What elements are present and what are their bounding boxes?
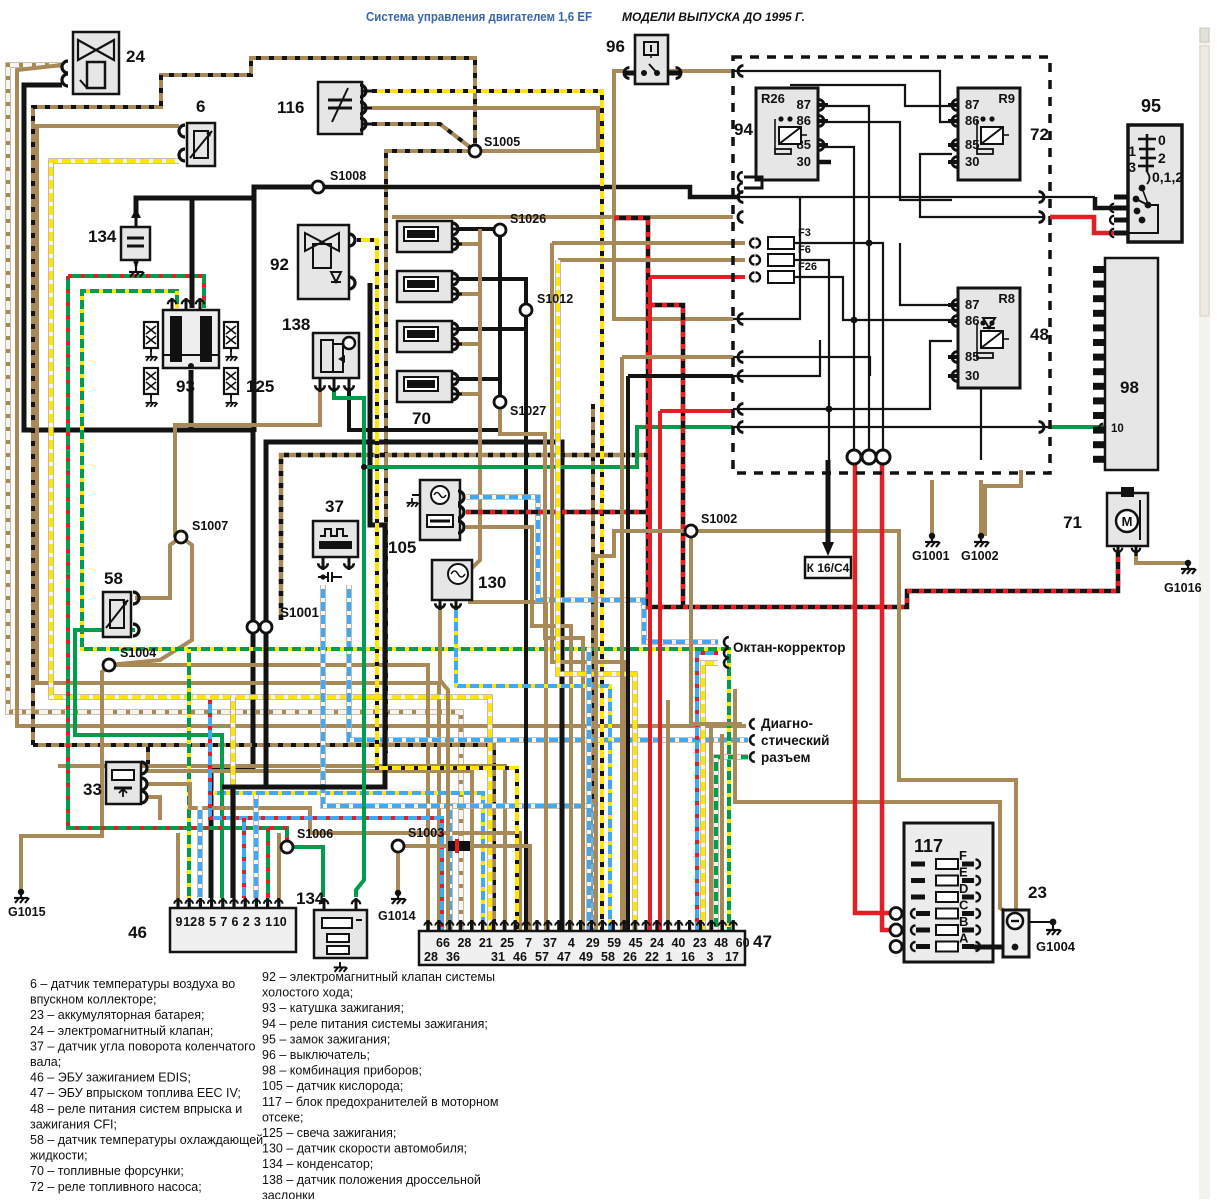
svg-text:24: 24 bbox=[650, 936, 664, 950]
svg-text:87: 87 bbox=[965, 297, 979, 312]
svg-text:C: C bbox=[959, 898, 969, 913]
svg-text:95: 95 bbox=[1141, 96, 1161, 116]
svg-text:71: 71 bbox=[1063, 513, 1082, 532]
svg-text:R26: R26 bbox=[761, 91, 785, 106]
svg-text:M: M bbox=[1122, 514, 1133, 529]
svg-text:58: 58 bbox=[601, 950, 615, 964]
svg-text:23 – аккумуляторная батарея;: 23 – аккумуляторная батарея; bbox=[30, 1008, 205, 1022]
svg-text:93 – катушка зажигания;: 93 – катушка зажигания; bbox=[262, 1001, 404, 1015]
svg-text:8: 8 bbox=[198, 915, 205, 929]
svg-text:S1001: S1001 bbox=[280, 605, 320, 620]
svg-text:разъем: разъем bbox=[761, 750, 810, 765]
svg-text:96: 96 bbox=[606, 37, 625, 56]
svg-text:6: 6 bbox=[196, 97, 205, 116]
svg-text:28: 28 bbox=[457, 936, 471, 950]
svg-text:23: 23 bbox=[1028, 883, 1047, 902]
svg-text:60: 60 bbox=[736, 936, 750, 950]
svg-text:жидкости;: жидкости; bbox=[30, 1149, 88, 1163]
svg-text:1: 1 bbox=[666, 950, 673, 964]
svg-text:36: 36 bbox=[446, 950, 460, 964]
svg-text:B: B bbox=[959, 914, 968, 929]
svg-text:70: 70 bbox=[412, 409, 431, 428]
svg-text:72: 72 bbox=[1030, 125, 1049, 144]
svg-text:87: 87 bbox=[797, 97, 811, 112]
svg-text:26: 26 bbox=[623, 950, 637, 964]
svg-text:134 – конденсатор;: 134 – конденсатор; bbox=[262, 1157, 373, 1171]
svg-text:25: 25 bbox=[500, 936, 514, 950]
svg-text:134: 134 bbox=[296, 889, 325, 908]
svg-text:R8: R8 bbox=[998, 291, 1015, 306]
svg-text:7: 7 bbox=[525, 936, 532, 950]
svg-text:49: 49 bbox=[579, 950, 593, 964]
svg-text:5: 5 bbox=[209, 915, 216, 929]
svg-text:24 – электромагнитный клапан;: 24 – электромагнитный клапан; bbox=[30, 1024, 213, 1038]
svg-text:37: 37 bbox=[543, 936, 557, 950]
svg-text:22: 22 bbox=[645, 950, 659, 964]
svg-text:130: 130 bbox=[478, 573, 506, 592]
svg-text:58: 58 bbox=[104, 569, 123, 588]
svg-text:заслонки: заслонки bbox=[262, 1188, 315, 1199]
svg-text:70 – топливные форсунки;: 70 – топливные форсунки; bbox=[30, 1164, 184, 1178]
svg-text:125 – свеча зажигания;: 125 – свеча зажигания; bbox=[262, 1126, 396, 1140]
svg-text:37 – датчик угла поворота коле: 37 – датчик угла поворота коленчатого bbox=[30, 1039, 255, 1053]
svg-text:98 – комбинация приборов;: 98 – комбинация приборов; bbox=[262, 1064, 422, 1078]
svg-text:9: 9 bbox=[176, 915, 183, 929]
svg-text:К 16/С4: К 16/С4 bbox=[807, 561, 850, 575]
svg-text:72 – реле топливного насоса;: 72 – реле топливного насоса; bbox=[30, 1180, 202, 1194]
svg-text:S1003: S1003 bbox=[408, 826, 444, 840]
svg-text:48: 48 bbox=[1030, 325, 1049, 344]
svg-text:отсеке;: отсеке; bbox=[262, 1110, 304, 1124]
svg-text:117 – блок предохранителей в м: 117 – блок предохранителей в моторном bbox=[262, 1095, 498, 1109]
svg-text:138 – датчик положения дроссел: 138 – датчик положения дроссельной bbox=[262, 1173, 481, 1187]
svg-text:4: 4 bbox=[568, 936, 575, 950]
svg-text:G1014: G1014 bbox=[378, 909, 416, 923]
svg-text:86: 86 bbox=[797, 113, 811, 128]
svg-text:37: 37 bbox=[325, 497, 344, 516]
svg-text:59: 59 bbox=[607, 936, 621, 950]
svg-text:1: 1 bbox=[265, 915, 272, 929]
svg-text:93: 93 bbox=[176, 377, 195, 396]
svg-text:12: 12 bbox=[183, 915, 197, 929]
svg-text:46 – ЭБУ зажиганием EDIS;: 46 – ЭБУ зажиганием EDIS; bbox=[30, 1071, 191, 1085]
svg-text:3: 3 bbox=[254, 915, 261, 929]
svg-text:58 – датчик температуры охлажд: 58 – датчик температуры охлаждающей bbox=[30, 1133, 263, 1147]
svg-text:134: 134 bbox=[88, 227, 117, 246]
svg-text:Октан-корректор: Октан-корректор bbox=[733, 640, 846, 655]
svg-text:2: 2 bbox=[1158, 150, 1166, 166]
svg-text:30: 30 bbox=[965, 368, 979, 383]
svg-text:45: 45 bbox=[629, 936, 643, 950]
svg-text:47: 47 bbox=[557, 950, 571, 964]
svg-text:92 – электромагнитный клапан с: 92 – электромагнитный клапан системы bbox=[262, 970, 495, 984]
svg-text:130 – датчик скорости автомоби: 130 – датчик скорости автомобиля; bbox=[262, 1142, 467, 1156]
svg-text:138: 138 bbox=[282, 315, 310, 334]
svg-text:S1005: S1005 bbox=[484, 135, 520, 149]
svg-text:впускном коллекторе;: впускном коллекторе; bbox=[30, 993, 157, 1007]
svg-text:6 – датчик температуры воздуха: 6 – датчик температуры воздуха во bbox=[30, 977, 235, 991]
svg-text:10: 10 bbox=[1111, 423, 1124, 435]
svg-text:МОДЕЛИ ВЫПУСКА ДО 1995 Г.: МОДЕЛИ ВЫПУСКА ДО 1995 Г. bbox=[622, 10, 805, 24]
svg-text:S1026: S1026 bbox=[510, 212, 546, 226]
svg-text:F3: F3 bbox=[798, 227, 811, 239]
svg-text:S1008: S1008 bbox=[330, 169, 366, 183]
svg-text:A: A bbox=[959, 931, 969, 946]
svg-text:48: 48 bbox=[714, 936, 728, 950]
svg-text:стический: стический bbox=[761, 733, 829, 748]
svg-text:S1002: S1002 bbox=[701, 512, 737, 526]
svg-text:16: 16 bbox=[681, 950, 695, 964]
svg-text:87: 87 bbox=[965, 97, 979, 112]
svg-text:S1027: S1027 bbox=[510, 404, 546, 418]
svg-text:1: 1 bbox=[1128, 143, 1136, 159]
svg-text:E: E bbox=[959, 865, 968, 880]
svg-text:117: 117 bbox=[914, 836, 943, 856]
svg-text:94 – реле питания системы зажи: 94 – реле питания системы зажигания; bbox=[262, 1017, 488, 1031]
svg-text:холостого хода;: холостого хода; bbox=[262, 986, 353, 1000]
svg-text:G1015: G1015 bbox=[8, 905, 46, 919]
svg-text:G1016: G1016 bbox=[1164, 581, 1202, 595]
svg-text:F26: F26 bbox=[798, 261, 817, 273]
svg-text:105: 105 bbox=[388, 538, 416, 557]
svg-text:98: 98 bbox=[1120, 378, 1139, 397]
svg-text:96 – выключатель;: 96 – выключатель; bbox=[262, 1048, 370, 1062]
svg-text:D: D bbox=[959, 881, 968, 896]
svg-text:7: 7 bbox=[220, 915, 227, 929]
svg-text:G1001: G1001 bbox=[912, 549, 950, 563]
svg-text:S1006: S1006 bbox=[297, 827, 333, 841]
svg-text:17: 17 bbox=[725, 950, 739, 964]
svg-text:Диагно-: Диагно- bbox=[761, 716, 813, 731]
svg-text:S1007: S1007 bbox=[192, 519, 228, 533]
svg-text:F: F bbox=[959, 848, 967, 863]
svg-text:95 – замок зажигания;: 95 – замок зажигания; bbox=[262, 1032, 390, 1046]
svg-text:зажигания CFI;: зажигания CFI; bbox=[30, 1117, 117, 1131]
svg-text:F6: F6 bbox=[798, 244, 811, 256]
svg-text:57: 57 bbox=[535, 950, 549, 964]
svg-text:116: 116 bbox=[277, 98, 304, 117]
svg-text:31: 31 bbox=[491, 950, 505, 964]
svg-text:47: 47 bbox=[753, 932, 772, 951]
svg-text:47 – ЭБУ впрыском топлива ЕЕС: 47 – ЭБУ впрыском топлива ЕЕС IV; bbox=[30, 1086, 241, 1100]
svg-text:10: 10 bbox=[273, 915, 287, 929]
svg-text:46: 46 bbox=[128, 923, 147, 942]
svg-text:21: 21 bbox=[479, 936, 493, 950]
svg-text:24: 24 bbox=[126, 47, 145, 66]
svg-text:30: 30 bbox=[797, 154, 811, 169]
svg-text:94: 94 bbox=[734, 120, 753, 139]
svg-text:вала;: вала; bbox=[30, 1055, 61, 1069]
svg-text:66: 66 bbox=[436, 936, 450, 950]
svg-text:48 – реле питания систем впрыс: 48 – реле питания систем впрыска и bbox=[30, 1102, 242, 1116]
svg-text:28: 28 bbox=[424, 950, 438, 964]
svg-text:30: 30 bbox=[965, 154, 979, 169]
svg-text:23: 23 bbox=[693, 936, 707, 950]
svg-text:S1012: S1012 bbox=[537, 292, 573, 306]
svg-text:0,1,2: 0,1,2 bbox=[1152, 169, 1183, 185]
svg-text:125: 125 bbox=[246, 377, 274, 396]
svg-text:3: 3 bbox=[1128, 159, 1136, 175]
svg-text:2: 2 bbox=[243, 915, 250, 929]
svg-text:R9: R9 bbox=[998, 91, 1015, 106]
svg-text:Система управления двигателем: Система управления двигателем 1,6 EF bbox=[366, 9, 592, 24]
svg-text:G1004: G1004 bbox=[1036, 939, 1076, 954]
svg-text:92: 92 bbox=[270, 255, 289, 274]
svg-text:33: 33 bbox=[83, 780, 102, 799]
svg-text:6: 6 bbox=[232, 915, 239, 929]
svg-text:S1004: S1004 bbox=[120, 646, 156, 660]
svg-text:29: 29 bbox=[586, 936, 600, 950]
svg-text:0: 0 bbox=[1158, 132, 1166, 148]
svg-text:3: 3 bbox=[707, 950, 714, 964]
svg-text:46: 46 bbox=[513, 950, 527, 964]
svg-text:105 – датчик кислорода;: 105 – датчик кислорода; bbox=[262, 1079, 403, 1093]
svg-text:40: 40 bbox=[671, 936, 685, 950]
svg-text:G1002: G1002 bbox=[961, 549, 999, 563]
